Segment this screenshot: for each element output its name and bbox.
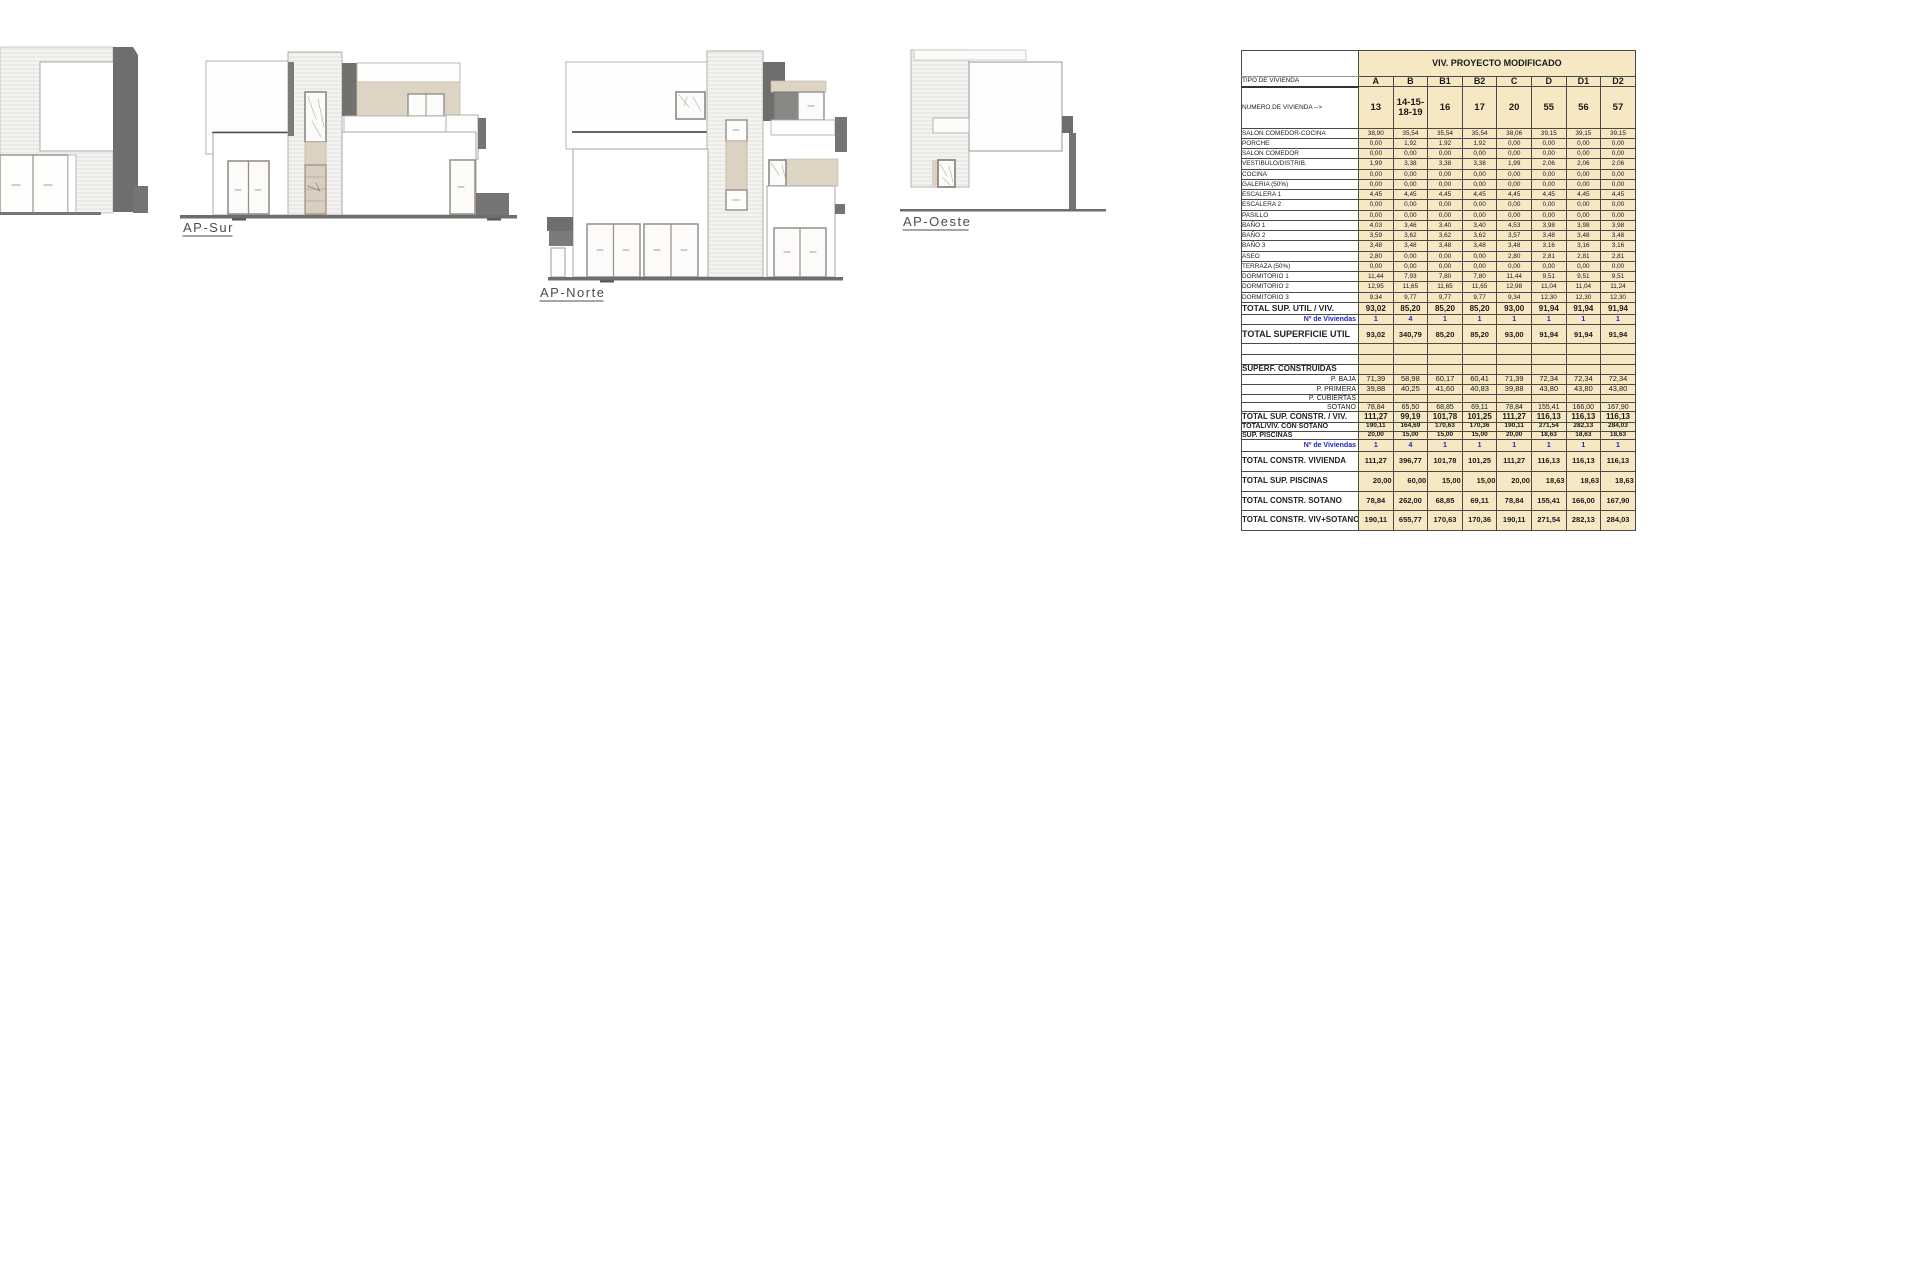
svg-text:AP-Norte: AP-Norte	[540, 285, 605, 300]
svg-text:AP-Oeste: AP-Oeste	[903, 214, 971, 229]
svg-text:AP-Sur: AP-Sur	[183, 220, 234, 235]
